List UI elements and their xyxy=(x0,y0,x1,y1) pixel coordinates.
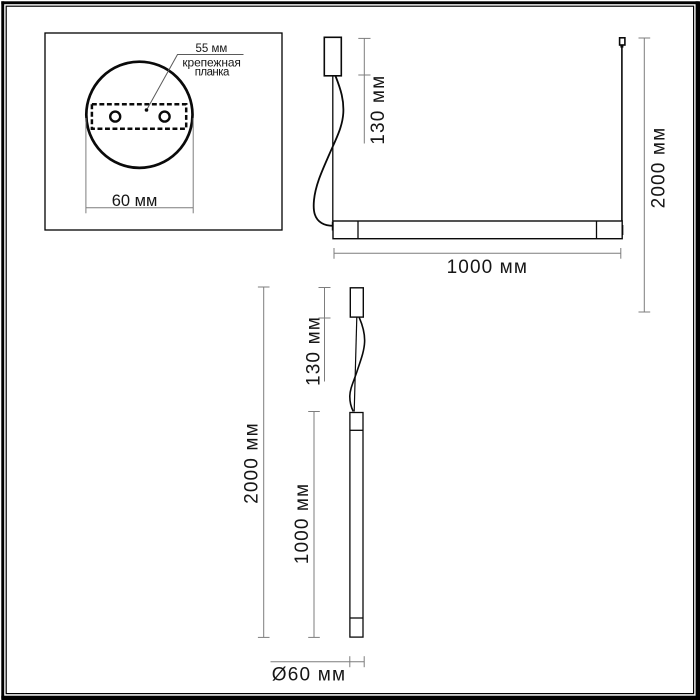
svg-text:1000 мм: 1000 мм xyxy=(447,257,528,278)
svg-text:55 мм: 55 мм xyxy=(195,43,227,55)
svg-text:1000 мм: 1000 мм xyxy=(292,483,313,564)
svg-text:60 мм: 60 мм xyxy=(112,192,158,210)
svg-text:2000 мм: 2000 мм xyxy=(242,422,263,504)
svg-text:130 мм: 130 мм xyxy=(368,75,389,145)
svg-text:планка: планка xyxy=(195,66,230,78)
svg-text:Ø60 мм: Ø60 мм xyxy=(272,665,347,686)
svg-text:130 мм: 130 мм xyxy=(304,316,325,386)
svg-text:2000 мм: 2000 мм xyxy=(649,127,670,209)
